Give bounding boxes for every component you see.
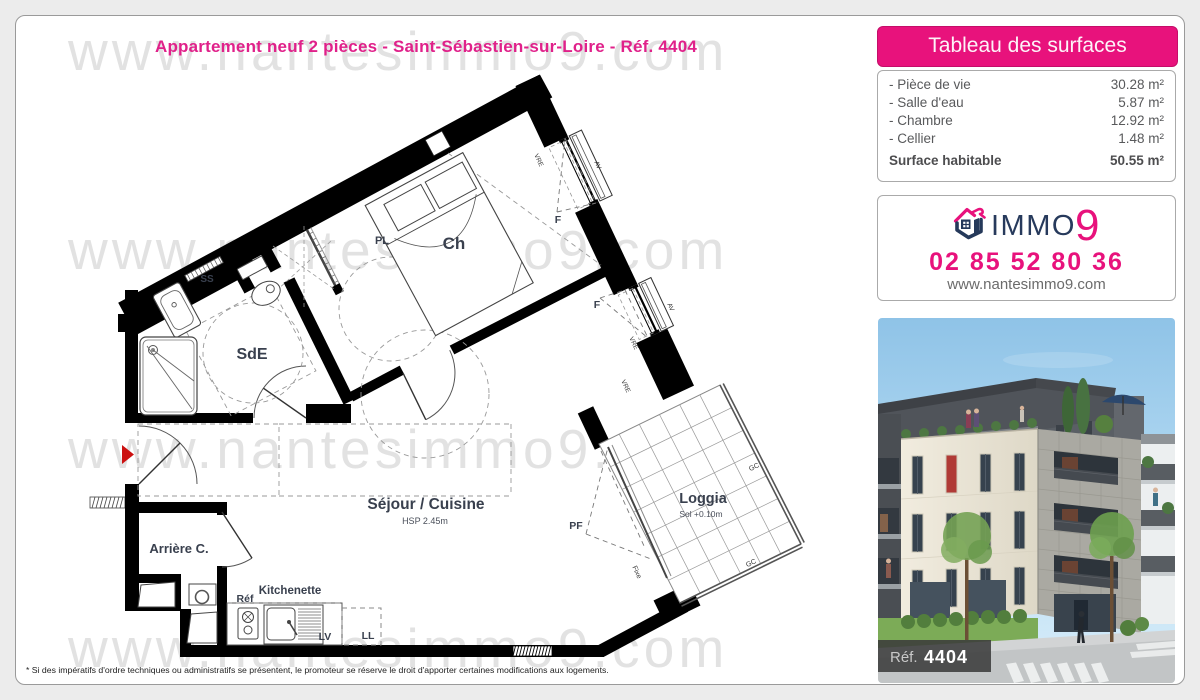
svg-text:Loggia: Loggia <box>679 491 727 507</box>
svg-text:F: F <box>555 214 562 226</box>
svg-text:SS: SS <box>200 274 214 285</box>
svg-text:VRE: VRE <box>532 153 544 169</box>
svg-text:Sol +0.10m: Sol +0.10m <box>679 509 722 519</box>
svg-text:LV: LV <box>319 631 332 643</box>
svg-text:Ch: Ch <box>443 234 466 253</box>
svg-text:HSP 2.45m: HSP 2.45m <box>402 516 448 526</box>
svg-text:4404: 4404 <box>924 647 968 667</box>
svg-text:IMMO: IMMO <box>991 210 1076 242</box>
svg-text:PF: PF <box>569 520 583 532</box>
svg-text:LL: LL <box>362 630 375 642</box>
svg-text:VRE: VRE <box>627 336 639 352</box>
svg-text:PL: PL <box>375 235 389 247</box>
svg-text:VRE: VRE <box>619 379 631 395</box>
svg-text:Fixe: Fixe <box>630 565 642 580</box>
svg-text:SdE: SdE <box>236 346 267 363</box>
svg-text:F: F <box>594 299 601 311</box>
svg-text:Kitchenette: Kitchenette <box>259 585 322 597</box>
svg-text:Réf: Réf <box>237 593 254 605</box>
svg-text:Réf.: Réf. <box>890 649 918 666</box>
svg-text:Arrière C.: Arrière C. <box>149 541 208 556</box>
svg-text:Séjour / Cuisine: Séjour / Cuisine <box>367 496 485 513</box>
svg-text:9: 9 <box>1075 206 1099 248</box>
